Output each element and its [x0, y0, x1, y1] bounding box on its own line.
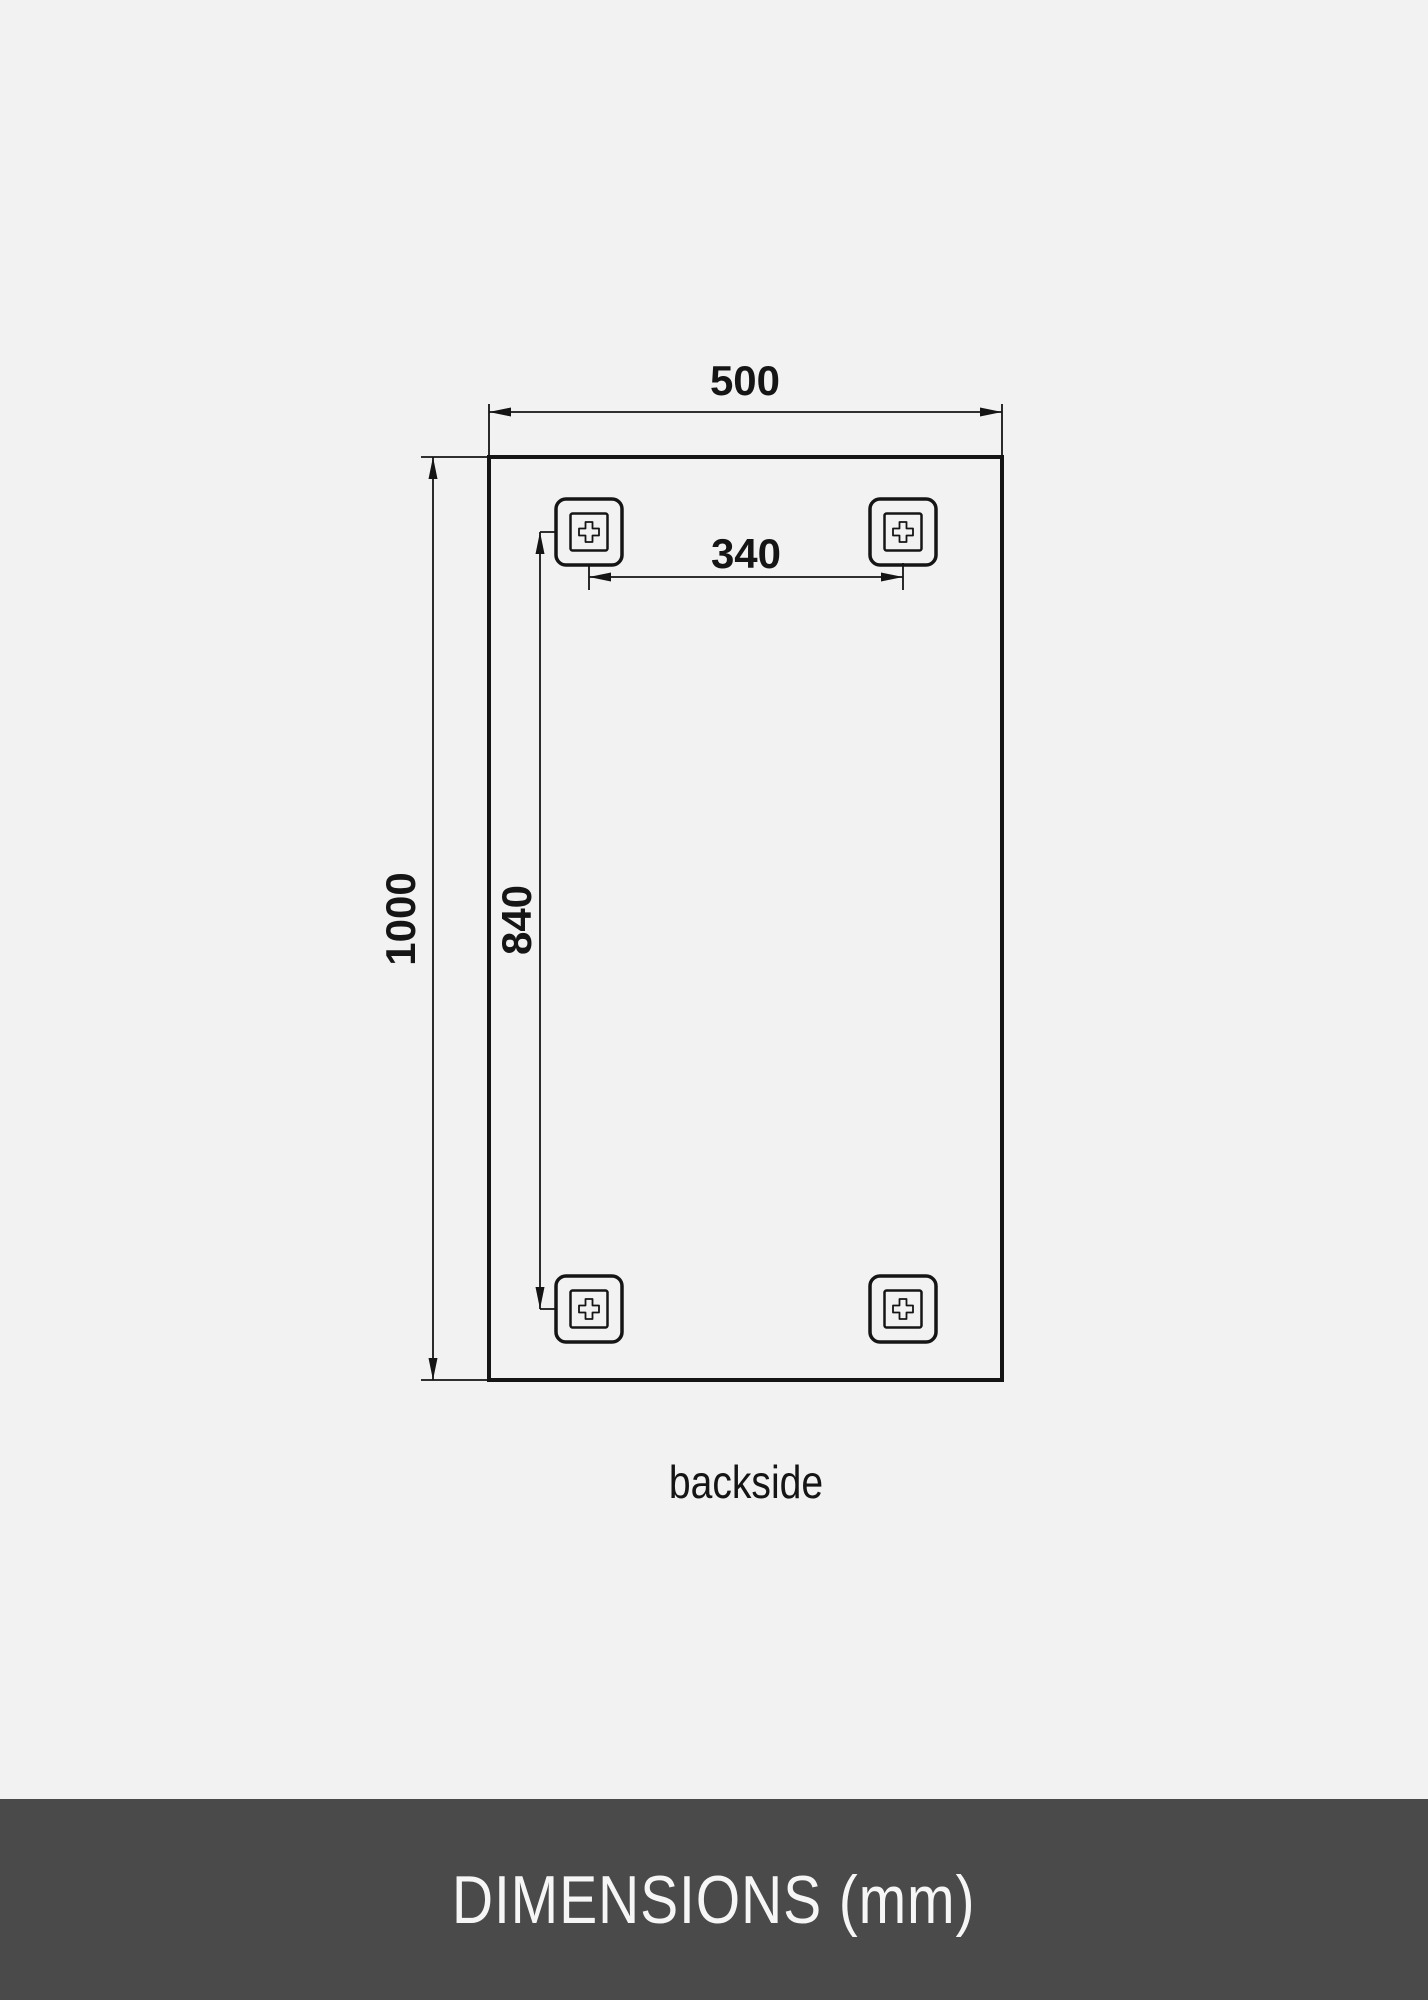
bracket-span-vertical-arrow-top — [536, 532, 545, 554]
mounting-bracket-top-left — [556, 499, 622, 565]
panel-outline — [489, 457, 1002, 1380]
mounting-bracket-top-right — [870, 499, 936, 565]
mounting-bracket-bottom-left — [556, 1276, 622, 1342]
height-dim-arrow-top — [429, 457, 438, 479]
bracket-span-horizontal-arrow-left — [589, 573, 611, 582]
width-dim-arrow-right — [980, 408, 1002, 417]
width-dimension-label: 500 — [710, 357, 780, 404]
bracket-span-vertical-extension-lines — [540, 532, 556, 1309]
bracket-span-horizontal-arrow-right — [881, 573, 903, 582]
width-dim-arrow-left — [489, 408, 511, 417]
footer-bar: DIMENSIONS (mm) — [0, 1799, 1428, 2000]
technical-drawing: 500 1000 840 340 backside — [0, 0, 1428, 1799]
mounting-bracket-bottom-right — [870, 1276, 936, 1342]
bracket-span-horizontal-label: 340 — [711, 530, 781, 577]
height-dimension-label: 1000 — [377, 872, 424, 965]
dimension-drawing-page: { "colors": { "background": "#f2f2f2", "… — [0, 0, 1428, 2000]
view-caption: backside — [669, 1457, 823, 1509]
bracket-span-vertical-arrow-bottom — [536, 1287, 545, 1309]
height-dim-extension-lines — [421, 457, 489, 1380]
footer-title: DIMENSIONS (mm) — [452, 1861, 975, 1939]
bracket-span-vertical-label: 840 — [493, 885, 540, 955]
height-dim-arrow-bottom — [429, 1358, 438, 1380]
